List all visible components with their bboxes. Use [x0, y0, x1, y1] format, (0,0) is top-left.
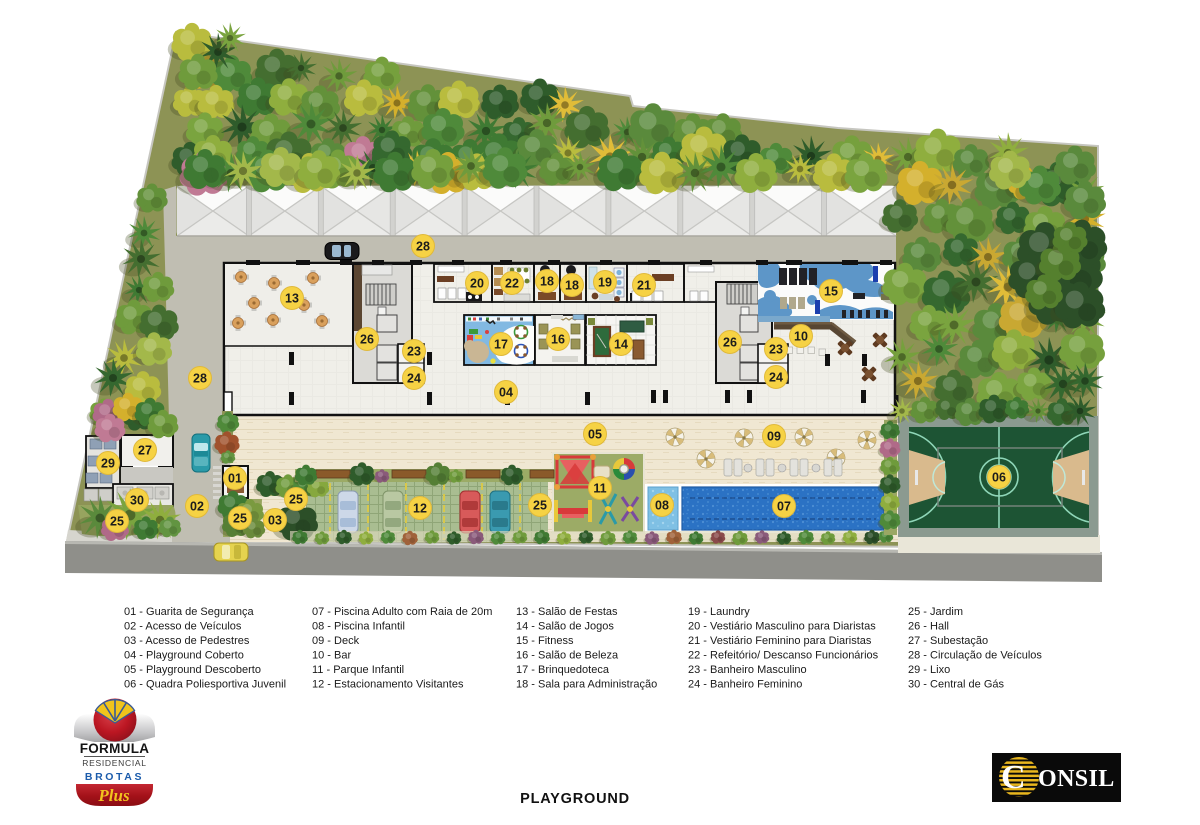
svg-text:05 - Playground Descoberto: 05 - Playground Descoberto: [124, 664, 261, 676]
svg-text:23 - Banheiro Masculino: 23 - Banheiro Masculino: [688, 664, 807, 676]
svg-text:25: 25: [289, 492, 303, 506]
svg-text:18 - Sala para Administração: 18 - Sala para Administração: [516, 679, 657, 691]
svg-text:19: 19: [598, 275, 612, 289]
svg-text:18: 18: [565, 278, 579, 292]
svg-text:PLAYGROUND: PLAYGROUND: [520, 791, 630, 807]
svg-text:21: 21: [637, 278, 651, 292]
svg-text:05: 05: [588, 427, 602, 441]
svg-text:22 - Refeitório/ Descanso Func: 22 - Refeitório/ Descanso Funcionários: [688, 650, 879, 662]
svg-text:C: C: [1001, 759, 1026, 796]
svg-text:15 - Fitness: 15 - Fitness: [516, 635, 574, 647]
svg-text:25: 25: [533, 498, 547, 512]
svg-text:27 - Subestação: 27 - Subestação: [908, 635, 988, 647]
svg-text:25: 25: [233, 511, 247, 525]
svg-text:09: 09: [767, 429, 781, 443]
svg-text:18: 18: [540, 274, 554, 288]
svg-text:26: 26: [360, 332, 374, 346]
svg-text:08: 08: [655, 498, 669, 512]
svg-text:28: 28: [416, 239, 430, 253]
svg-text:07 - Piscina Adulto com Raia d: 07 - Piscina Adulto com Raia de 20m: [312, 606, 492, 618]
svg-text:25 - Jardim: 25 - Jardim: [908, 606, 963, 618]
svg-text:26 - Hall: 26 - Hall: [908, 621, 949, 633]
svg-text:24 - Banheiro Feminino: 24 - Banheiro Feminino: [688, 679, 802, 691]
svg-text:06: 06: [992, 470, 1006, 484]
svg-text:21 - Vestiário Feminino para D: 21 - Vestiário Feminino para Diaristas: [688, 635, 872, 647]
svg-text:09 - Deck: 09 - Deck: [312, 635, 360, 647]
svg-text:ONSIL: ONSIL: [1038, 766, 1115, 792]
svg-text:27: 27: [138, 443, 152, 457]
svg-text:01: 01: [228, 471, 242, 485]
svg-text:RESIDENCIAL: RESIDENCIAL: [82, 758, 146, 768]
svg-text:23: 23: [769, 342, 783, 356]
svg-text:17: 17: [494, 337, 508, 351]
svg-text:20: 20: [470, 276, 484, 290]
svg-text:29 - Lixo: 29 - Lixo: [908, 664, 950, 676]
svg-text:03: 03: [268, 513, 282, 527]
svg-text:11: 11: [593, 481, 606, 495]
svg-text:07: 07: [777, 499, 791, 513]
svg-text:08 - Piscina Infantil: 08 - Piscina Infantil: [312, 621, 405, 633]
svg-text:10 - Bar: 10 - Bar: [312, 650, 351, 662]
svg-text:04 - Playground Coberto: 04 - Playground Coberto: [124, 650, 244, 662]
svg-text:26: 26: [723, 335, 737, 349]
svg-text:11 - Parque Infantil: 11 - Parque Infantil: [312, 664, 404, 676]
svg-text:03 - Acesso de Pedestres: 03 - Acesso de Pedestres: [124, 635, 250, 647]
svg-text:19 - Laundry: 19 - Laundry: [688, 606, 750, 618]
svg-text:22: 22: [505, 276, 519, 290]
svg-text:14 - Salão de Jogos: 14 - Salão de Jogos: [516, 621, 614, 633]
svg-text:20 - Vestiário Masculino para: 20 - Vestiário Masculino para Diaristas: [688, 621, 876, 633]
svg-text:28: 28: [193, 371, 207, 385]
svg-text:24: 24: [407, 371, 421, 385]
svg-text:06 - Quadra Poliesportiva Juve: 06 - Quadra Poliesportiva Juvenil: [124, 679, 286, 691]
svg-text:13 - Salão de Festas: 13 - Salão de Festas: [516, 606, 618, 618]
svg-text:13: 13: [285, 291, 299, 305]
svg-text:12 - Estacionamento Visitantes: 12 - Estacionamento Visitantes: [312, 679, 464, 691]
svg-text:16 - Salão de Beleza: 16 - Salão de Beleza: [516, 650, 619, 662]
svg-text:02 - Acesso de Veículos: 02 - Acesso de Veículos: [124, 621, 242, 633]
svg-text:30: 30: [130, 493, 144, 507]
svg-text:29: 29: [101, 456, 115, 470]
svg-text:01 - Guarita de Segurança: 01 - Guarita de Segurança: [124, 606, 255, 618]
svg-text:30 - Central de Gás: 30 - Central de Gás: [908, 679, 1004, 691]
svg-text:FORMULA: FORMULA: [80, 741, 150, 756]
svg-text:12: 12: [413, 501, 427, 515]
svg-text:Plus: Plus: [97, 786, 130, 805]
svg-text:25: 25: [110, 514, 124, 528]
svg-text:02: 02: [190, 499, 204, 513]
svg-text:24: 24: [769, 370, 783, 384]
svg-text:10: 10: [794, 329, 808, 343]
svg-text:16: 16: [551, 332, 565, 346]
svg-text:17 - Brinquedoteca: 17 - Brinquedoteca: [516, 664, 610, 676]
svg-text:15: 15: [824, 284, 838, 298]
svg-text:28 - Circulação de Veículos: 28 - Circulação de Veículos: [908, 650, 1042, 662]
svg-text:BROTAS: BROTAS: [85, 771, 144, 783]
svg-text:23: 23: [407, 344, 421, 358]
svg-text:04: 04: [499, 385, 513, 399]
svg-text:14: 14: [614, 337, 628, 351]
